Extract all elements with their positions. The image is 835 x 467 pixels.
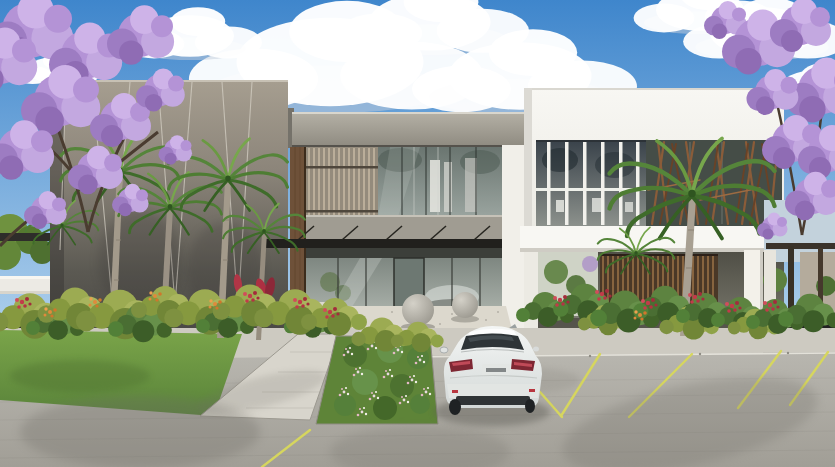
car-wheel-left	[449, 399, 461, 415]
car-mirror-right	[533, 347, 539, 352]
interior-furniture	[556, 200, 564, 212]
window-band	[536, 140, 646, 226]
rendering-canvas	[0, 0, 835, 467]
car-reflector-left	[452, 390, 458, 393]
branch-screen	[646, 140, 782, 226]
car-wheel-right	[525, 399, 535, 413]
car-mirror-left	[440, 347, 448, 353]
balcony-band	[306, 215, 502, 239]
concrete-sphere-small	[452, 292, 478, 318]
pergola-beam	[766, 243, 835, 249]
car-diffuser	[456, 396, 530, 405]
license-plate-text-blur	[486, 368, 506, 372]
concrete-sphere-large	[402, 294, 434, 326]
car-reflector-right	[529, 389, 535, 392]
car-bumper	[447, 384, 540, 398]
fascia-band	[292, 112, 532, 148]
glass-curtain-upper	[378, 147, 502, 217]
scene-svg	[0, 0, 835, 467]
